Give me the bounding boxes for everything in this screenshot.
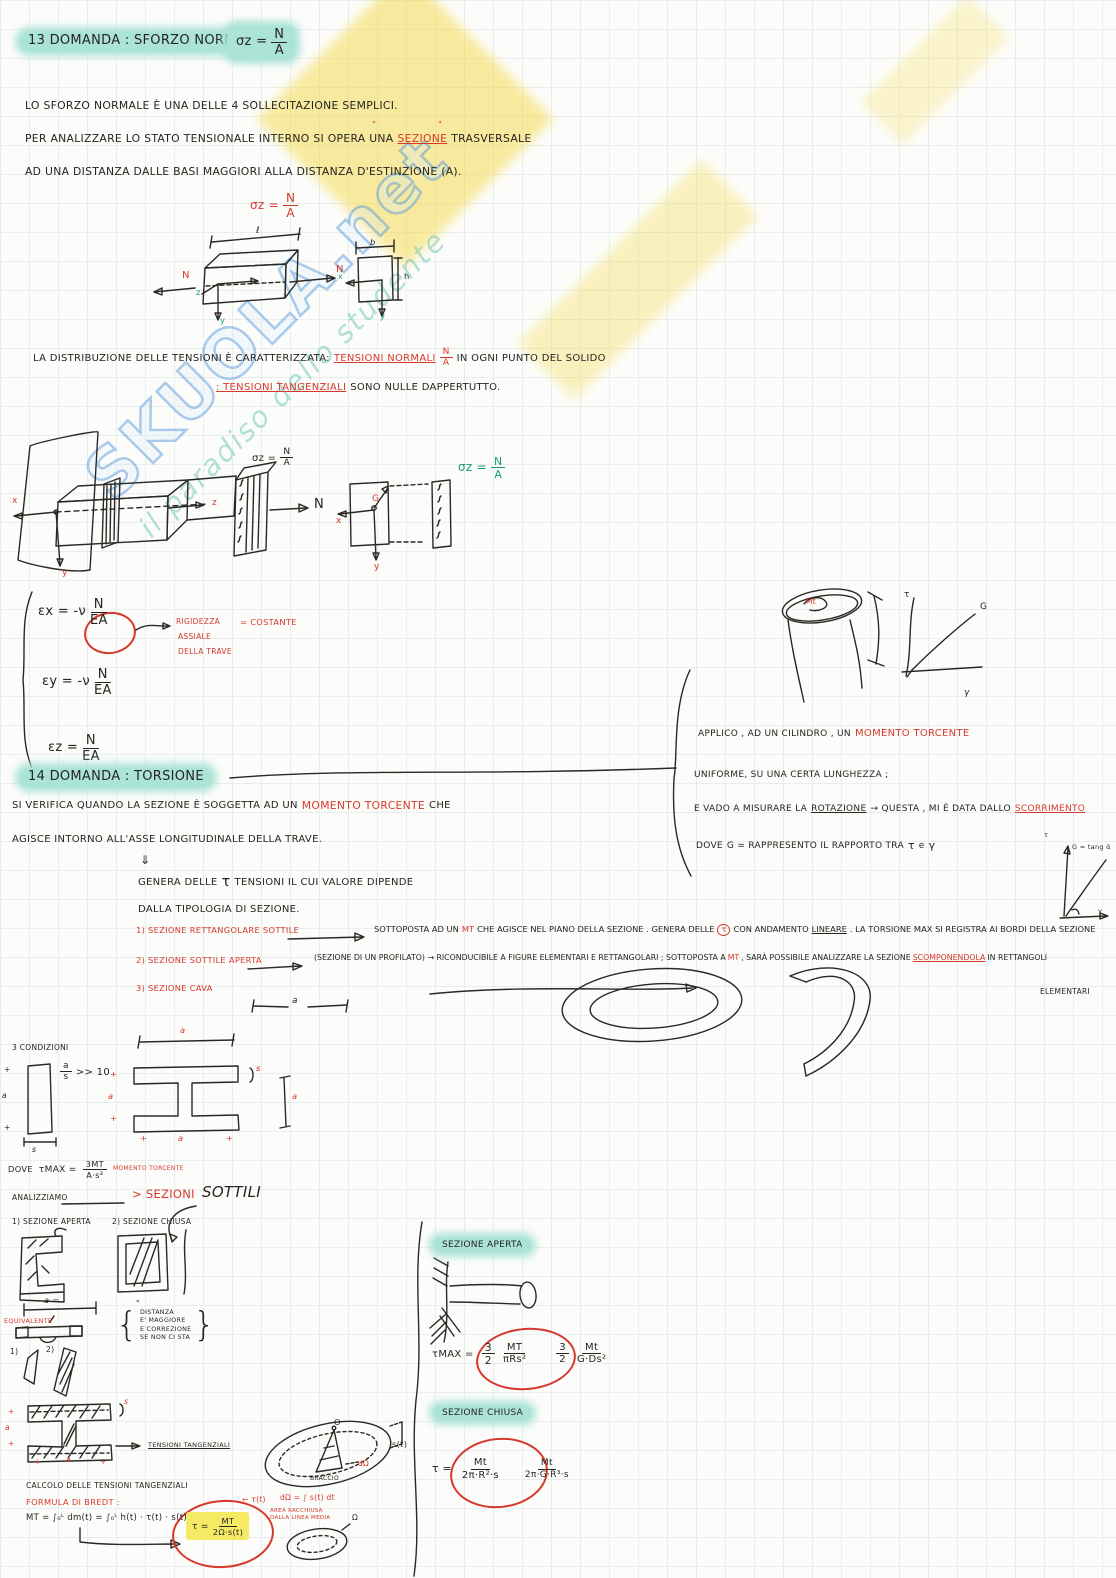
r1-momento-torcente: MOMENTO TORCENTE	[855, 728, 970, 740]
p1-b: CHE	[429, 800, 451, 812]
bracket-note: { DISTANZA E' MAGGIORE E CORREZIONE SE N…	[116, 1308, 215, 1342]
q13-title-formula: σz = NA	[228, 26, 295, 59]
frac-num: N	[271, 28, 287, 43]
plot-tau-label: τ	[904, 590, 910, 600]
dist-line-2: : TENSIONI TANGENZIALI SONO NULLE DAPPER…	[216, 382, 500, 394]
ibeam-plus-br: +	[226, 1134, 233, 1144]
item1-label: 1) SEZIONE RETTANGOLARE SOTTILE	[136, 926, 299, 936]
p2-text-a: PER ANALIZZARE LO STATO TENSIONALE INTER…	[25, 133, 394, 145]
ibeam-a-bottom: a	[178, 1134, 183, 1144]
p3-tau: τ	[222, 874, 231, 891]
frac-num: N	[283, 192, 298, 206]
beam-n-left: N	[182, 270, 190, 282]
cond-ratio: as >> 10	[60, 1060, 110, 1083]
ratio-rest: >> 10	[76, 1067, 110, 1079]
red-plus-2: +	[110, 1114, 117, 1124]
ibeam-plus-bl: +	[140, 1134, 147, 1144]
q13-paragraph-3: AD UNA DISTANZA DALLE BASI MAGGIORI ALLA…	[25, 166, 462, 178]
omega-label: Ω	[352, 1514, 358, 1523]
thin-plus-top: +	[4, 1066, 11, 1075]
sigma-label: σz =	[458, 461, 487, 475]
bredt-label: FORMULA DI BREDT :	[26, 1498, 120, 1508]
area-note: AREA RACCHIUSA DALLA LINEA MEDIA	[270, 1508, 342, 1522]
plot-g-label: G	[980, 602, 987, 612]
brace-left	[16, 590, 36, 770]
ap-mt2: Mt	[582, 1343, 601, 1355]
fig2-y-label: y	[62, 568, 68, 578]
eq-den: EA	[90, 613, 108, 628]
mini-tau-label: τ	[1044, 832, 1048, 839]
ellipse-o-label: O	[334, 1418, 341, 1428]
dist2-red: : TENSIONI TANGENZIALI	[216, 382, 346, 394]
right-line-1: APPLICO , AD UN CILINDRO , UN MOMENTO TO…	[698, 728, 970, 740]
hib-plus-bottom: +	[8, 1440, 15, 1449]
frac-num: N	[280, 448, 293, 458]
p3-b: TENSIONI IL CUI VALORE DIPENDE	[235, 877, 414, 889]
sigma-label: σz =	[250, 199, 279, 213]
p2-sezione: SEZIONE	[398, 133, 448, 145]
p2-text-b: TRASVERSALE	[451, 133, 531, 145]
right-line-3: E VADO A MISURARE LA ROTAZIONE → QUESTA …	[694, 804, 1085, 814]
it1-d4: . LA TORSIONE MAX SI REGISTRA AI BORDI D…	[850, 925, 1096, 935]
fig2-x-label: x	[12, 496, 18, 506]
num-1-label: 1)	[10, 1348, 18, 1357]
notebook-page: SKUOLA.net il paradiso dello studente 13…	[0, 0, 1116, 1578]
right-line-2: UNIFORME, SU UNA CERTA LUNGHEZZA ;	[694, 770, 888, 780]
ibeam-a-top: a	[180, 1026, 185, 1036]
eq-den: EA	[94, 683, 112, 698]
r4-e: e	[919, 841, 925, 851]
hib-s-label: s	[124, 1398, 128, 1407]
ch-num: Mt	[471, 1458, 490, 1470]
item2-continuation: ELEMENTARI	[1040, 988, 1090, 997]
r4-gamma: γ	[929, 840, 936, 852]
quote-mark-left: "	[372, 120, 376, 130]
equivalente-label: EQUIVALENTE	[4, 1318, 52, 1325]
ap-3b: 3	[556, 1343, 569, 1355]
red-a-1: a	[108, 1092, 113, 1102]
bredt-formula: MT = ∫₀ᴸ dm(t) = ∫₀ᴸ h(t) · τ(t) · s(t) …	[26, 1514, 199, 1524]
ap-3: 3	[482, 1342, 495, 1354]
section-b-label: b	[370, 238, 376, 248]
mini-g-eq-label: G = tang ᾱ	[1072, 844, 1111, 851]
section-h-label: h	[404, 272, 410, 282]
frac-den: A	[494, 468, 502, 480]
dove-num: 3MT	[83, 1160, 107, 1170]
hib-a-left: a	[5, 1424, 10, 1433]
ch-tau: τ =	[432, 1463, 452, 1475]
domega-formula: dΩ = ∫ s(t) dt	[280, 1494, 335, 1503]
q14-paragraph-2: AGISCE INTORNO ALL'ASSE LONGITUDINALE DE…	[12, 834, 322, 846]
p1-a: SI VERIFICA QUANDO LA SEZIONE È SOGGETTA…	[12, 800, 298, 812]
dist1-b: IN OGNI PUNTO DEL SOLIDO	[457, 353, 606, 365]
r3-b: → QUESTA , MI È DATA DALLO	[870, 804, 1010, 814]
dist1-a: LA DISTRIBUZIONE DELLE TENSIONI È CARATT…	[33, 353, 330, 365]
brace-open: {	[116, 1308, 138, 1342]
frac-den: A	[443, 358, 449, 368]
note-arrow	[134, 618, 174, 634]
hib-plus-bl: +	[34, 1458, 41, 1467]
chiusa-formula: τ = Mt2π·R²·s Mt2π·G·R³·s	[432, 1458, 569, 1481]
thin-a-label: a	[2, 1092, 7, 1101]
thin-plus-bottom: +	[4, 1124, 11, 1133]
fig2-y2-label: y	[374, 562, 380, 572]
ratio-num: a	[60, 1062, 72, 1072]
res-note: ← τ(t)	[242, 1496, 266, 1505]
dist2-b: SONO NULLE DAPPERTUTTO.	[350, 382, 500, 394]
item3-label: 3) SEZIONE CAVA	[136, 984, 213, 994]
r4-b: G = RAPPRESENTO IL RAPPORTO TRA	[727, 841, 904, 851]
ap-den: πRs²	[503, 1354, 526, 1366]
ch-den2: 2π·G·R³·s	[525, 1470, 569, 1480]
sezione-chiusa-title: SEZIONE CHIUSA	[434, 1406, 531, 1420]
curved-open-section-figure	[762, 958, 902, 1080]
hib-a-bottom: a	[66, 1456, 71, 1465]
r3-rotazione: ROTAZIONE	[811, 804, 866, 814]
note-costante: = COSTANTE	[240, 618, 297, 628]
it2-d1: (SEZIONE DI UN PROFILATO) → RICONDUCIBIL…	[314, 954, 726, 963]
fig2-g-label: G	[372, 494, 379, 504]
sub2-label: 2) SEZIONE CHIUSA	[112, 1218, 191, 1227]
eq-epsilon-y: εy = -ν NEA	[42, 668, 112, 697]
ibeam-a-right: a	[292, 1092, 297, 1102]
eq1-lhs: εx = -ν	[38, 605, 86, 620]
it1-d3: CON ANDAMENTO	[733, 925, 808, 935]
fig2-sigma-mid: σz = NA	[252, 448, 293, 469]
thin-s-label: s	[32, 1146, 36, 1155]
dove-label: DOVE	[8, 1165, 33, 1175]
cond-title: 3 CONDIZIONI	[12, 1044, 69, 1053]
mini-gamma-label: γ	[1098, 908, 1102, 915]
beam-z-label: z	[196, 288, 201, 298]
frac-den: A	[275, 43, 284, 58]
ibeam-s-right: s	[256, 1064, 261, 1074]
braccio-label: BRACCIO	[310, 1476, 339, 1483]
it1-lineare: LINEARE	[812, 925, 847, 935]
frac-den: A	[286, 206, 295, 220]
q13-formula-red: σz = NA	[250, 192, 298, 219]
ap-mt: MT	[504, 1343, 525, 1355]
right-line-4: DOVE G = RAPPRESENTO IL RAPPORTO TRA τ e…	[696, 840, 935, 852]
note-rigidezza: RIGIDEZZA	[176, 618, 220, 627]
eq-den: EA	[82, 749, 100, 764]
ch-num2: Mt	[538, 1459, 556, 1469]
bracket-line-3: E CORREZIONE	[140, 1326, 191, 1333]
quote-mark-right: "	[438, 120, 442, 130]
section-y-label: y	[380, 312, 385, 322]
item2-label: 2) SEZIONE SOTTILE APERTA	[136, 956, 262, 966]
eq3-lhs: εz =	[48, 741, 78, 756]
beam-y-label: y	[220, 316, 225, 326]
num-2-label: 2)	[46, 1346, 54, 1355]
bredt-result: τ = MT2Ω·s(t)	[186, 1512, 249, 1540]
dove-row: DOVE τMAX = 3MTA·s² MOMENTO TORCENTE	[8, 1160, 184, 1179]
r4-dove: DOVE	[696, 841, 723, 851]
note-della-trave: DELLA TRAVE	[178, 648, 232, 657]
eq-num: N	[83, 734, 99, 749]
frac-den: A	[284, 458, 290, 468]
eq-epsilon-z: εz = NEA	[48, 734, 100, 763]
red-plus-1: +	[110, 1070, 117, 1080]
q14-paragraph-1: SI VERIFICA QUANDO LA SEZIONE È SOGGETTA…	[12, 800, 451, 812]
eq-epsilon-x: εx = -ν NEA	[38, 598, 108, 627]
q14-title: 14 DOMANDA : TORSIONE	[20, 768, 212, 787]
sigma-label: σz =	[236, 35, 267, 50]
eq2-lhs: εy = -ν	[42, 675, 90, 690]
ch-den: 2π·R²·s	[462, 1470, 499, 1482]
hollow-section-figure	[558, 966, 748, 1044]
res-num: MT	[219, 1517, 238, 1527]
fig2-n-label: N	[314, 498, 324, 513]
a-equals-label: a =	[44, 1296, 60, 1306]
dim-a-line	[250, 998, 354, 1016]
frac-num: N	[491, 456, 505, 468]
note-assiale: ASSIALE	[178, 633, 211, 642]
res-den: 2Ω·s(t)	[213, 1527, 243, 1537]
ellipse-st-label: s(t)	[392, 1440, 407, 1450]
fig2-x2-label: x	[336, 516, 342, 526]
dim-a-label: a	[292, 996, 298, 1006]
brace-right-column	[664, 668, 694, 880]
eq-num: N	[91, 598, 107, 613]
eq-num: N	[95, 668, 111, 683]
braccio-ellipse-figure	[254, 1408, 404, 1500]
p3-a: GENERA DELLE	[138, 877, 218, 889]
brace-close: }	[193, 1308, 215, 1342]
r3-scorrimento: SCORRIMENTO	[1015, 804, 1085, 814]
dist-line-1: LA DISTRIBUZIONE DELLE TENSIONI È CARATT…	[33, 348, 606, 369]
analizziamo-label: ANALIZZIAMO	[12, 1194, 68, 1203]
frac-num: N	[440, 348, 453, 358]
ellipse-domega-label: dΩ	[358, 1460, 369, 1469]
dove-note: MOMENTO TORCENTE	[113, 1166, 184, 1173]
dove-den: A·s²	[86, 1170, 103, 1180]
it1-mt: MT	[462, 925, 474, 935]
analizziamo-line	[60, 1198, 130, 1208]
tensioni-tangenziali-label: TENSIONI TANGENZIALI	[148, 1442, 230, 1449]
dove-tmax: τMAX =	[39, 1165, 77, 1175]
hib-plus-top: +	[8, 1408, 15, 1417]
sezione-aperta-title: SEZIONE APERTA	[434, 1238, 531, 1252]
bracket-line-4: SE NON CI STA	[140, 1334, 191, 1341]
sezioni-red: > SEZIONI	[132, 1188, 195, 1201]
ap-2: 2	[485, 1354, 492, 1366]
hib-plus-br: +	[100, 1458, 107, 1467]
it1-d1: SOTTOPOSTA AD UN	[374, 925, 459, 935]
q13-paragraph-2: PER ANALIZZARE LO STATO TENSIONALE INTER…	[25, 133, 531, 145]
it2-scomponendola: SCOMPONENDOLA	[913, 954, 986, 963]
calcolo-label: CALCOLO DELLE TENSIONI TANGENZIALI	[26, 1482, 188, 1491]
plot-gamma-label: γ	[964, 688, 970, 698]
it2-d2: , SARÀ POSSIBILE ANALIZZARE LA SEZIONE	[741, 954, 910, 963]
item2-desc: (SEZIONE DI UN PROFILATO) → RICONDUCIBIL…	[314, 954, 1047, 963]
sottili-label: SOTTILI	[202, 1184, 261, 1201]
r3-a: E VADO A MISURARE LA	[694, 804, 807, 814]
fig2-z-label: z	[212, 498, 217, 508]
ap-2b: 2	[559, 1354, 566, 1366]
sigma-label: σz =	[252, 453, 276, 465]
section-x-label: x	[338, 272, 343, 282]
q14-paragraph-3: GENERA DELLE τ TENSIONI IL CUI VALORE DI…	[138, 874, 413, 891]
item1-desc: SOTTOPOSTA AD UN MT CHE AGISCE NEL PIANO…	[374, 924, 1095, 936]
it1-d2: CHE AGISCE NEL PIANO DELLA SEZIONE . GEN…	[477, 925, 714, 935]
ap-den2: G·Ds²	[577, 1354, 606, 1366]
it2-d3: IN RETTANGOLI	[987, 954, 1047, 963]
fig2-sigma-right: σz = NA	[458, 456, 505, 481]
cylinder-mt-label: Mt	[806, 598, 816, 607]
omega-ellipse-figure	[284, 1520, 354, 1566]
ratio-den: s	[63, 1072, 68, 1082]
r4-tau: τ	[908, 840, 915, 852]
divider-line	[228, 758, 678, 784]
watermark-yellow-streak-2	[861, 0, 1009, 144]
sub1-label: 1) SEZIONE APERTA	[12, 1218, 91, 1227]
ap-tmax: τMAX =	[432, 1349, 474, 1361]
ibeam-figure	[126, 1030, 304, 1142]
it2-mt: MT	[728, 954, 740, 963]
q13-paragraph-1: LO SFORZO NORMALE È UNA DELLE 4 SOLLECIT…	[25, 100, 398, 112]
aperta-formula: τMAX = 32 MTπRs² 32 MtG·Ds²	[432, 1342, 606, 1367]
p1-momento-torcente: MOMENTO TORCENTE	[302, 800, 425, 812]
bracket-line-2: E' MAGGIORE	[140, 1317, 191, 1324]
beam-length-label: ℓ	[256, 226, 260, 236]
dist1-red: TENSIONI NORMALI	[334, 353, 436, 365]
it1-tau-circled: τ	[717, 924, 730, 936]
r1-a: APPLICO , AD UN CILINDRO , UN	[698, 729, 851, 739]
down-arrow: ⇓	[140, 854, 150, 868]
q14-paragraph-4: DALLA TIPOLOGIA DI SEZIONE.	[138, 904, 300, 916]
res-tau: τ =	[192, 1522, 209, 1532]
bracket-line-1: DISTANZA	[140, 1309, 191, 1316]
